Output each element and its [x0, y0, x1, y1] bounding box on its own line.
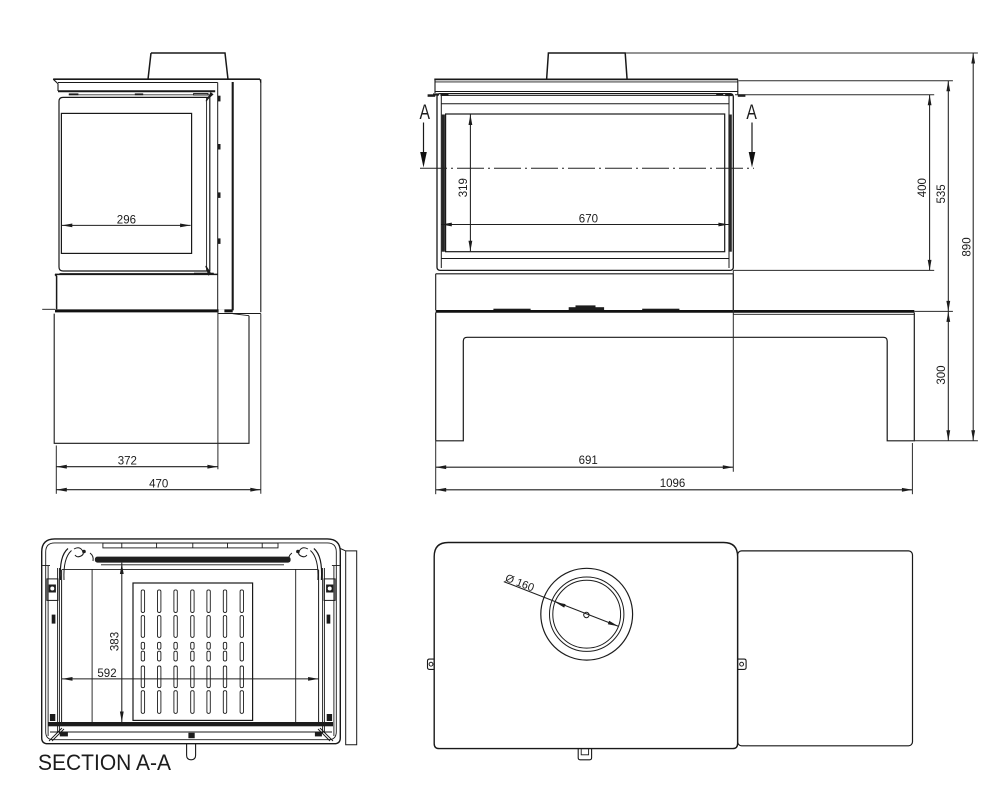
svg-text:296: 296 — [117, 214, 136, 226]
svg-text:1096: 1096 — [660, 478, 686, 490]
svg-text:691: 691 — [579, 455, 598, 467]
svg-text:300: 300 — [936, 365, 948, 384]
svg-text:372: 372 — [118, 456, 137, 468]
svg-text:890: 890 — [961, 237, 973, 256]
svg-text:592: 592 — [97, 668, 116, 680]
svg-text:319: 319 — [458, 178, 470, 197]
svg-text:383: 383 — [109, 632, 121, 651]
svg-text:SECTION A-A: SECTION A-A — [38, 750, 171, 775]
svg-text:400: 400 — [917, 178, 929, 197]
svg-text:670: 670 — [579, 214, 598, 226]
svg-text:470: 470 — [149, 479, 168, 491]
svg-text:A: A — [746, 100, 757, 124]
svg-text:A: A — [420, 100, 431, 124]
svg-text:535: 535 — [936, 184, 948, 203]
